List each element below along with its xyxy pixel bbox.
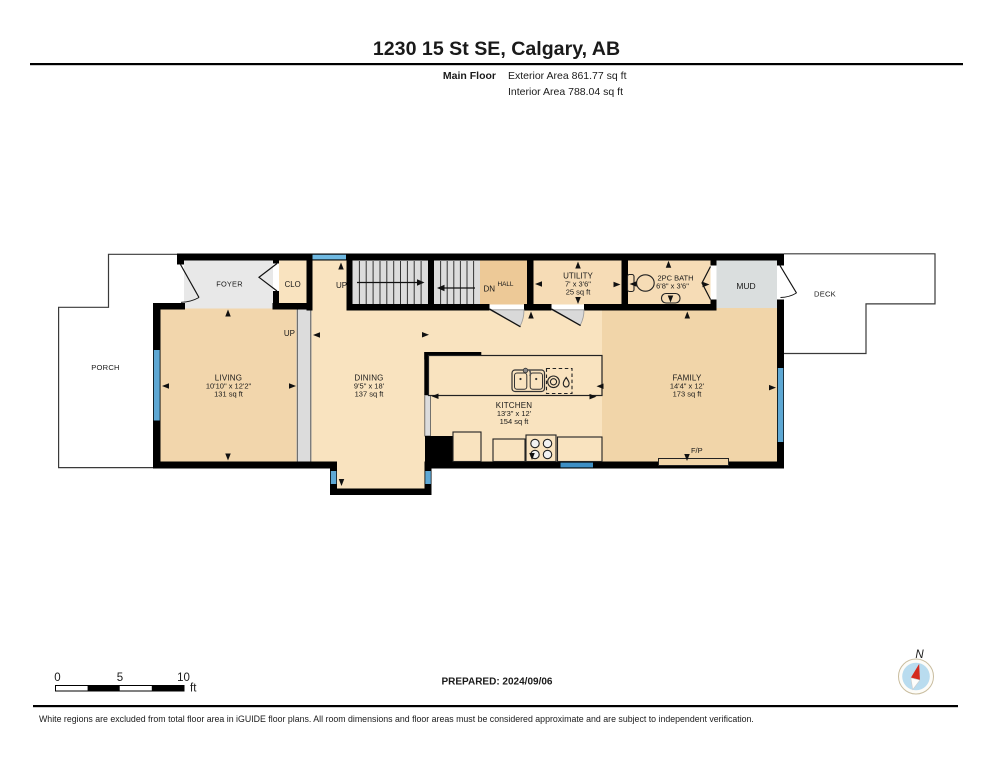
svg-text:UP: UP: [284, 329, 295, 338]
svg-text:FOYER: FOYER: [216, 280, 242, 289]
svg-text:PREPARED: 2024/09/06: PREPARED: 2024/09/06: [442, 677, 553, 688]
svg-text:25 sq ft: 25 sq ft: [566, 287, 592, 296]
svg-text:10: 10: [177, 672, 190, 684]
svg-text:White regions are excluded fro: White regions are excluded from total fl…: [39, 714, 754, 724]
svg-text:DN: DN: [484, 285, 496, 294]
svg-text:CLO: CLO: [285, 280, 301, 289]
svg-text:137 sq ft: 137 sq ft: [355, 389, 385, 398]
svg-text:1230 15 St SE, Calgary, AB: 1230 15 St SE, Calgary, AB: [373, 38, 620, 60]
svg-text:ft: ft: [190, 683, 197, 695]
svg-text:F/P: F/P: [691, 446, 703, 455]
svg-text:131 sq ft: 131 sq ft: [214, 389, 244, 398]
svg-text:173 sq ft: 173 sq ft: [673, 389, 703, 398]
svg-text:N: N: [915, 649, 924, 661]
svg-text:HALL: HALL: [498, 281, 514, 288]
svg-text:154 sq ft: 154 sq ft: [500, 417, 530, 426]
svg-text:DECK: DECK: [814, 290, 836, 299]
svg-text:6'8" x 3'6": 6'8" x 3'6": [656, 282, 689, 291]
svg-text:MUD: MUD: [736, 281, 755, 291]
svg-text:Interior Area 788.04 sq ft: Interior Area 788.04 sq ft: [508, 86, 623, 98]
svg-text:UP: UP: [336, 281, 347, 290]
svg-text:PORCH: PORCH: [91, 363, 119, 372]
svg-text:0: 0: [54, 672, 60, 684]
svg-text:Exterior Area 861.77 sq ft: Exterior Area 861.77 sq ft: [508, 70, 627, 82]
svg-text:Main Floor: Main Floor: [443, 70, 496, 82]
svg-text:5: 5: [117, 672, 123, 684]
